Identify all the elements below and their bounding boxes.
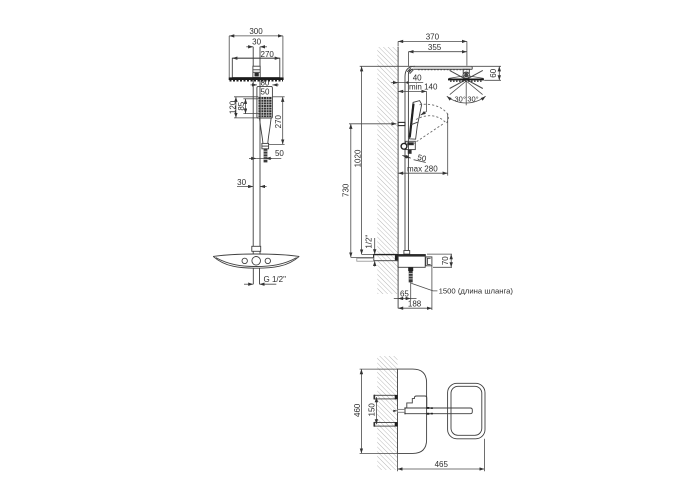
svg-text:730: 730: [341, 183, 350, 197]
svg-text:270: 270: [274, 114, 283, 128]
svg-text:85: 85: [237, 101, 246, 110]
svg-text:max 280: max 280: [407, 165, 438, 174]
svg-text:30: 30: [237, 178, 246, 187]
svg-text:1500 (длина шланга): 1500 (длина шланга): [439, 287, 514, 296]
svg-text:30: 30: [252, 38, 261, 47]
svg-text:460: 460: [353, 403, 362, 417]
svg-text:370: 370: [426, 33, 440, 42]
svg-text:65: 65: [400, 289, 409, 298]
svg-text:30°: 30°: [467, 95, 478, 104]
svg-text:300: 300: [249, 27, 263, 36]
svg-text:min 140: min 140: [409, 83, 438, 92]
svg-text:1/2": 1/2": [365, 235, 374, 249]
svg-text:40: 40: [413, 74, 422, 83]
svg-text:G 1/2": G 1/2": [264, 275, 287, 284]
svg-text:50: 50: [275, 149, 284, 158]
svg-text:30°: 30°: [455, 95, 466, 104]
svg-text:1020: 1020: [354, 149, 363, 167]
svg-text:60: 60: [489, 68, 498, 77]
svg-text:70: 70: [441, 256, 450, 265]
svg-text:270: 270: [261, 50, 275, 59]
svg-text:355: 355: [428, 43, 442, 52]
svg-text:50: 50: [261, 87, 270, 96]
svg-text:188: 188: [408, 299, 422, 308]
svg-text:150: 150: [368, 403, 377, 417]
svg-text:465: 465: [435, 460, 449, 469]
